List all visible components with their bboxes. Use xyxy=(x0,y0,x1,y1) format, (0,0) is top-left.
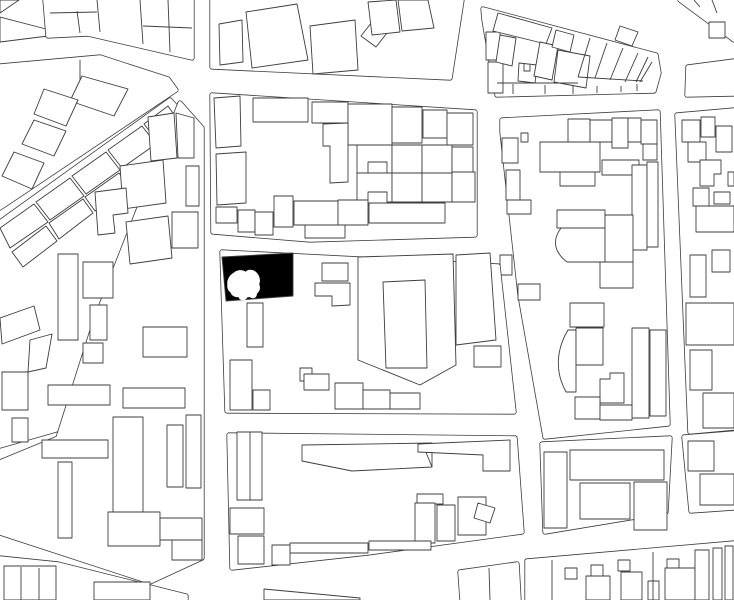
block-top-center xyxy=(212,0,462,78)
parcel xyxy=(591,565,603,576)
parcel xyxy=(423,110,447,138)
parcel xyxy=(186,166,199,206)
parcel xyxy=(186,415,201,488)
parcel xyxy=(452,147,473,172)
parcel xyxy=(338,200,368,225)
parcel xyxy=(238,536,264,564)
parcel xyxy=(474,346,501,367)
parcel xyxy=(368,0,400,35)
parcel xyxy=(682,120,700,142)
parcel xyxy=(690,350,712,390)
parcel xyxy=(148,113,177,161)
parcel xyxy=(634,482,667,530)
block-bottom-fragment xyxy=(460,564,519,600)
parcel xyxy=(725,546,733,600)
parcel xyxy=(701,117,715,137)
site-plan-svg xyxy=(0,0,734,600)
parcel xyxy=(4,566,56,600)
parcel xyxy=(605,215,633,262)
parcel xyxy=(632,165,647,250)
block-bottom-center-sliver xyxy=(264,589,360,600)
parcel xyxy=(348,104,392,145)
parcel xyxy=(230,360,252,410)
parcel xyxy=(172,540,202,560)
parcel xyxy=(544,452,567,528)
parcel xyxy=(557,210,605,228)
parcel xyxy=(247,303,263,347)
parcel xyxy=(456,253,496,345)
parcel xyxy=(230,508,264,534)
parcel xyxy=(274,196,293,227)
parcel xyxy=(612,118,628,148)
block-east-edge xyxy=(677,110,734,432)
parcel xyxy=(58,254,78,340)
parcel xyxy=(693,188,709,206)
parcel xyxy=(618,560,630,571)
parcel xyxy=(488,62,503,93)
parcel xyxy=(392,173,422,202)
parcel xyxy=(686,303,734,345)
parcel xyxy=(632,328,649,418)
parcel xyxy=(580,483,630,519)
block-top-left-corner-strip xyxy=(0,17,48,42)
block-central-site xyxy=(222,252,514,412)
parcel xyxy=(570,303,604,327)
block-center-bottom xyxy=(229,432,522,568)
parcel xyxy=(714,192,730,204)
parcel xyxy=(246,4,308,68)
block-bottom-right-comb xyxy=(527,543,734,600)
parcel xyxy=(83,262,113,298)
parcel xyxy=(290,543,368,553)
parcel xyxy=(600,405,632,420)
parcel xyxy=(502,138,518,163)
parcel xyxy=(214,96,241,148)
parcel xyxy=(565,568,577,579)
site-plan-map xyxy=(0,0,734,600)
parcel xyxy=(437,505,455,541)
parcel xyxy=(667,559,679,568)
parcel xyxy=(305,225,345,238)
parcel xyxy=(600,262,633,288)
parcel xyxy=(12,418,28,442)
parcel xyxy=(590,120,612,142)
parcel xyxy=(521,133,528,142)
parcel xyxy=(452,172,475,202)
parcel xyxy=(422,145,452,173)
parcel xyxy=(713,548,722,600)
parcel xyxy=(369,203,445,223)
parcel xyxy=(253,390,270,410)
parcel xyxy=(540,142,600,172)
parcel xyxy=(369,541,431,550)
parcel xyxy=(42,440,108,458)
parcel xyxy=(238,210,255,232)
parcel xyxy=(335,383,363,409)
parcel xyxy=(665,568,695,600)
parcel xyxy=(172,212,198,248)
parcel xyxy=(272,545,290,565)
parcel xyxy=(392,107,422,143)
parcel xyxy=(392,145,422,173)
parcel xyxy=(575,397,600,419)
parcel xyxy=(310,20,358,74)
parcel xyxy=(94,582,150,600)
parcel xyxy=(500,255,512,275)
parcel xyxy=(216,207,237,223)
parcel xyxy=(690,255,706,297)
parcel xyxy=(555,228,605,262)
parcel xyxy=(390,393,420,409)
parcel xyxy=(90,305,107,340)
parcel xyxy=(219,20,243,65)
block-central-upper xyxy=(212,95,475,240)
parcel xyxy=(650,330,666,416)
parcel xyxy=(648,581,659,600)
parcel xyxy=(643,144,657,160)
parcel xyxy=(506,170,520,200)
parcel xyxy=(255,212,273,235)
parcel xyxy=(48,385,110,405)
parcel xyxy=(304,374,329,390)
parcel xyxy=(576,328,603,365)
parcel xyxy=(728,172,734,186)
parcel xyxy=(160,518,202,540)
parcel xyxy=(621,572,642,600)
parcel xyxy=(560,172,595,186)
parcel xyxy=(703,393,734,428)
parcel xyxy=(447,113,473,145)
block-east-lower xyxy=(684,433,734,511)
parcel xyxy=(123,388,185,408)
parcel xyxy=(363,390,390,409)
parcel xyxy=(398,0,434,31)
block-top-right-corner xyxy=(680,0,734,40)
parcel xyxy=(688,142,706,162)
parcel xyxy=(570,450,664,480)
parcel xyxy=(2,372,28,410)
parcel xyxy=(496,35,516,66)
parcel xyxy=(108,512,160,546)
parcel xyxy=(143,327,187,357)
parcel xyxy=(167,425,183,487)
parcel xyxy=(716,126,732,152)
block-northeast-plain xyxy=(687,61,734,95)
parcel xyxy=(507,200,531,214)
parcel xyxy=(700,474,734,505)
parcel xyxy=(417,494,443,504)
parcel xyxy=(312,102,348,123)
parcel xyxy=(415,503,435,543)
parcel xyxy=(688,441,714,471)
parcel xyxy=(709,22,725,38)
parcel xyxy=(696,206,734,232)
parcel xyxy=(216,152,246,205)
parcel xyxy=(83,343,103,363)
parcel xyxy=(322,263,348,281)
parcel xyxy=(422,173,452,202)
parcel xyxy=(58,462,72,538)
block-top-left-corner-triangle xyxy=(0,0,19,13)
block-right-mid xyxy=(542,438,670,532)
parcel xyxy=(641,120,657,144)
parcel xyxy=(712,250,730,272)
parcel xyxy=(518,284,540,300)
parcel xyxy=(237,432,262,500)
parcel xyxy=(568,119,590,142)
parcel xyxy=(695,550,709,600)
parcel xyxy=(176,113,194,158)
block-top-right xyxy=(483,9,659,95)
parcel xyxy=(253,98,308,122)
parcel xyxy=(586,576,610,600)
parcel xyxy=(647,162,658,247)
parcel xyxy=(126,216,172,264)
parcel xyxy=(294,201,338,225)
parcel xyxy=(628,118,641,142)
block-top-left-cluster xyxy=(45,0,192,58)
block-right-center xyxy=(500,112,668,437)
